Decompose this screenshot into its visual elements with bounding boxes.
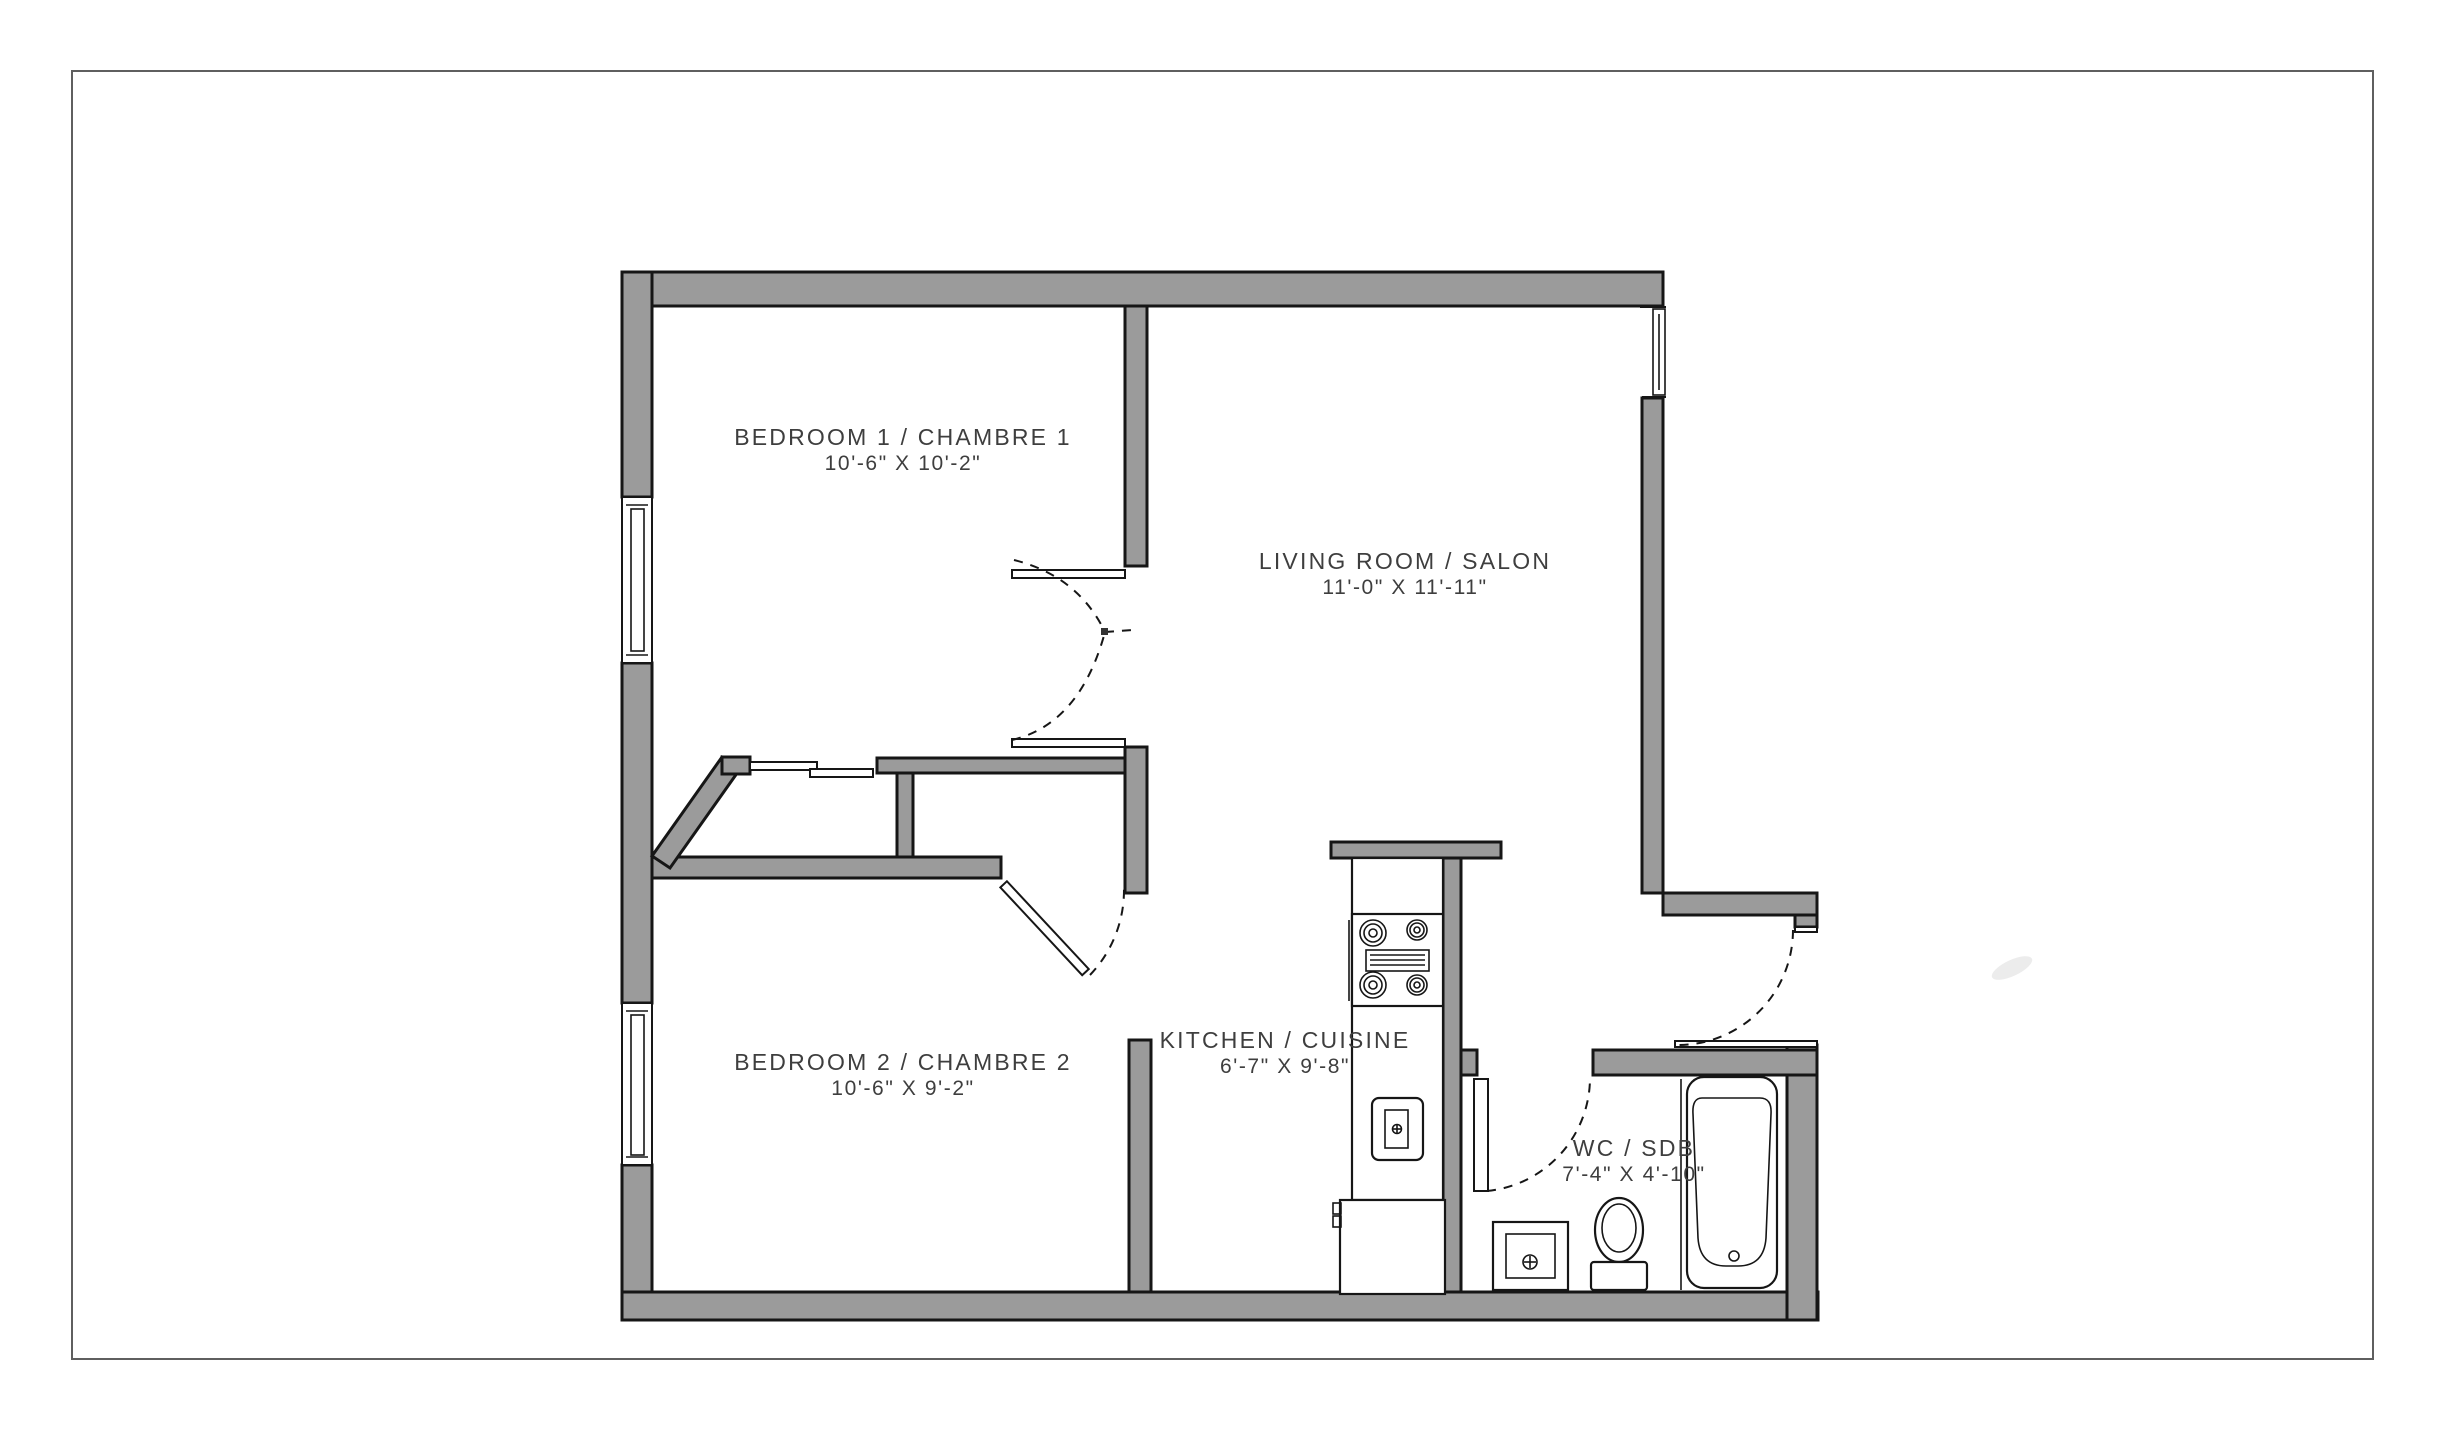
bathroom-door-leaf <box>1474 1079 1488 1191</box>
bedroom2-east-wall-lower <box>1129 1040 1151 1292</box>
room-dimensions: 10'-6" X 9'-2" <box>734 1076 1072 1102</box>
bottom-exterior-wall <box>622 1292 1818 1320</box>
closet-sliding-door-leaf-2 <box>810 769 873 777</box>
east-wall-living-room <box>1642 398 1663 893</box>
bathroom-north-wall <box>1593 1050 1817 1075</box>
room-label-living-room: LIVING ROOM / SALON 11'-0" X 11'-11" <box>1259 547 1551 601</box>
room-name: BEDROOM 2 / CHAMBRE 2 <box>734 1048 1072 1076</box>
kitchen-wall-notch <box>1461 1050 1477 1075</box>
bedroom1-window-icon <box>622 497 652 663</box>
floor-plan-page: BEDROOM 1 / CHAMBRE 1 10'-6" X 10'-2" LI… <box>0 0 2445 1430</box>
bedroom2-door-swing-arc <box>1090 889 1124 975</box>
bedroom1-living-divider-wall <box>1125 306 1147 566</box>
room-name: BEDROOM 1 / CHAMBRE 1 <box>734 423 1072 451</box>
closet-sliding-door-leaf-1 <box>750 762 817 770</box>
bedroom1-door-meeting-point <box>1101 628 1108 635</box>
watermark-smudge <box>1989 951 2036 984</box>
refrigerator-icon <box>1333 1200 1445 1294</box>
room-dimensions: 7'-4" X 4'-10" <box>1562 1162 1705 1188</box>
room-dimensions: 6'-7" X 9'-8" <box>1160 1054 1411 1080</box>
hall-closet-stub-wall <box>897 773 913 857</box>
floor-plan-drawing <box>0 0 2445 1430</box>
room-dimensions: 10'-6" X 10'-2" <box>734 451 1072 477</box>
page-border <box>72 71 2373 1359</box>
east-exterior-wall-lower <box>1787 1045 1817 1320</box>
bedroom1-door-swing-arc-bottom <box>1012 632 1105 740</box>
bedroom1-door-swing-tail <box>1105 630 1132 632</box>
hall-north-wall <box>877 758 1125 773</box>
livingroom-window-icon <box>1640 307 1666 397</box>
toilet-icon <box>1591 1198 1647 1290</box>
room-label-kitchen: KITCHEN / CUISINE 6'-7" X 9'-8" <box>1160 1026 1411 1080</box>
bedroom1-door-leaf-bottom <box>1012 739 1125 747</box>
bathroom-sink-icon <box>1493 1222 1568 1290</box>
left-exterior-wall-middle <box>622 663 652 1003</box>
stove-icon <box>1352 914 1443 1006</box>
bedroom2-door-leaf <box>1000 881 1088 975</box>
hall-south-wall <box>652 857 1001 878</box>
closet-corner-block <box>722 757 750 774</box>
room-label-bedroom2: BEDROOM 2 / CHAMBRE 2 10'-6" X 9'-2" <box>734 1048 1072 1102</box>
room-dimensions: 11'-0" X 11'-11" <box>1259 575 1551 601</box>
bedroom1-door-leaf-top <box>1012 570 1125 578</box>
entry-door-swing-arc <box>1678 930 1793 1045</box>
room-label-bathroom: WC / SDB 7'-4" X 4'-10" <box>1562 1134 1705 1188</box>
top-exterior-wall <box>622 272 1663 306</box>
room-label-bedroom1: BEDROOM 1 / CHAMBRE 1 10'-6" X 10'-2" <box>734 423 1072 477</box>
left-exterior-wall-upper <box>622 272 652 497</box>
entry-door-jamb-stub <box>1795 915 1817 927</box>
room-name: LIVING ROOM / SALON <box>1259 547 1551 575</box>
kitchen-header-wall <box>1331 842 1501 858</box>
bedroom2-window-icon <box>622 1003 652 1165</box>
kitchen-sink-icon <box>1372 1098 1423 1160</box>
bedroom2-east-wall-upper <box>1125 747 1147 893</box>
room-name: WC / SDB <box>1562 1134 1705 1162</box>
entry-door-threshold <box>1795 927 1817 932</box>
room-name: KITCHEN / CUISINE <box>1160 1026 1411 1054</box>
bathroom-opening-header-line <box>1675 1041 1817 1047</box>
entry-north-wall <box>1663 893 1817 915</box>
